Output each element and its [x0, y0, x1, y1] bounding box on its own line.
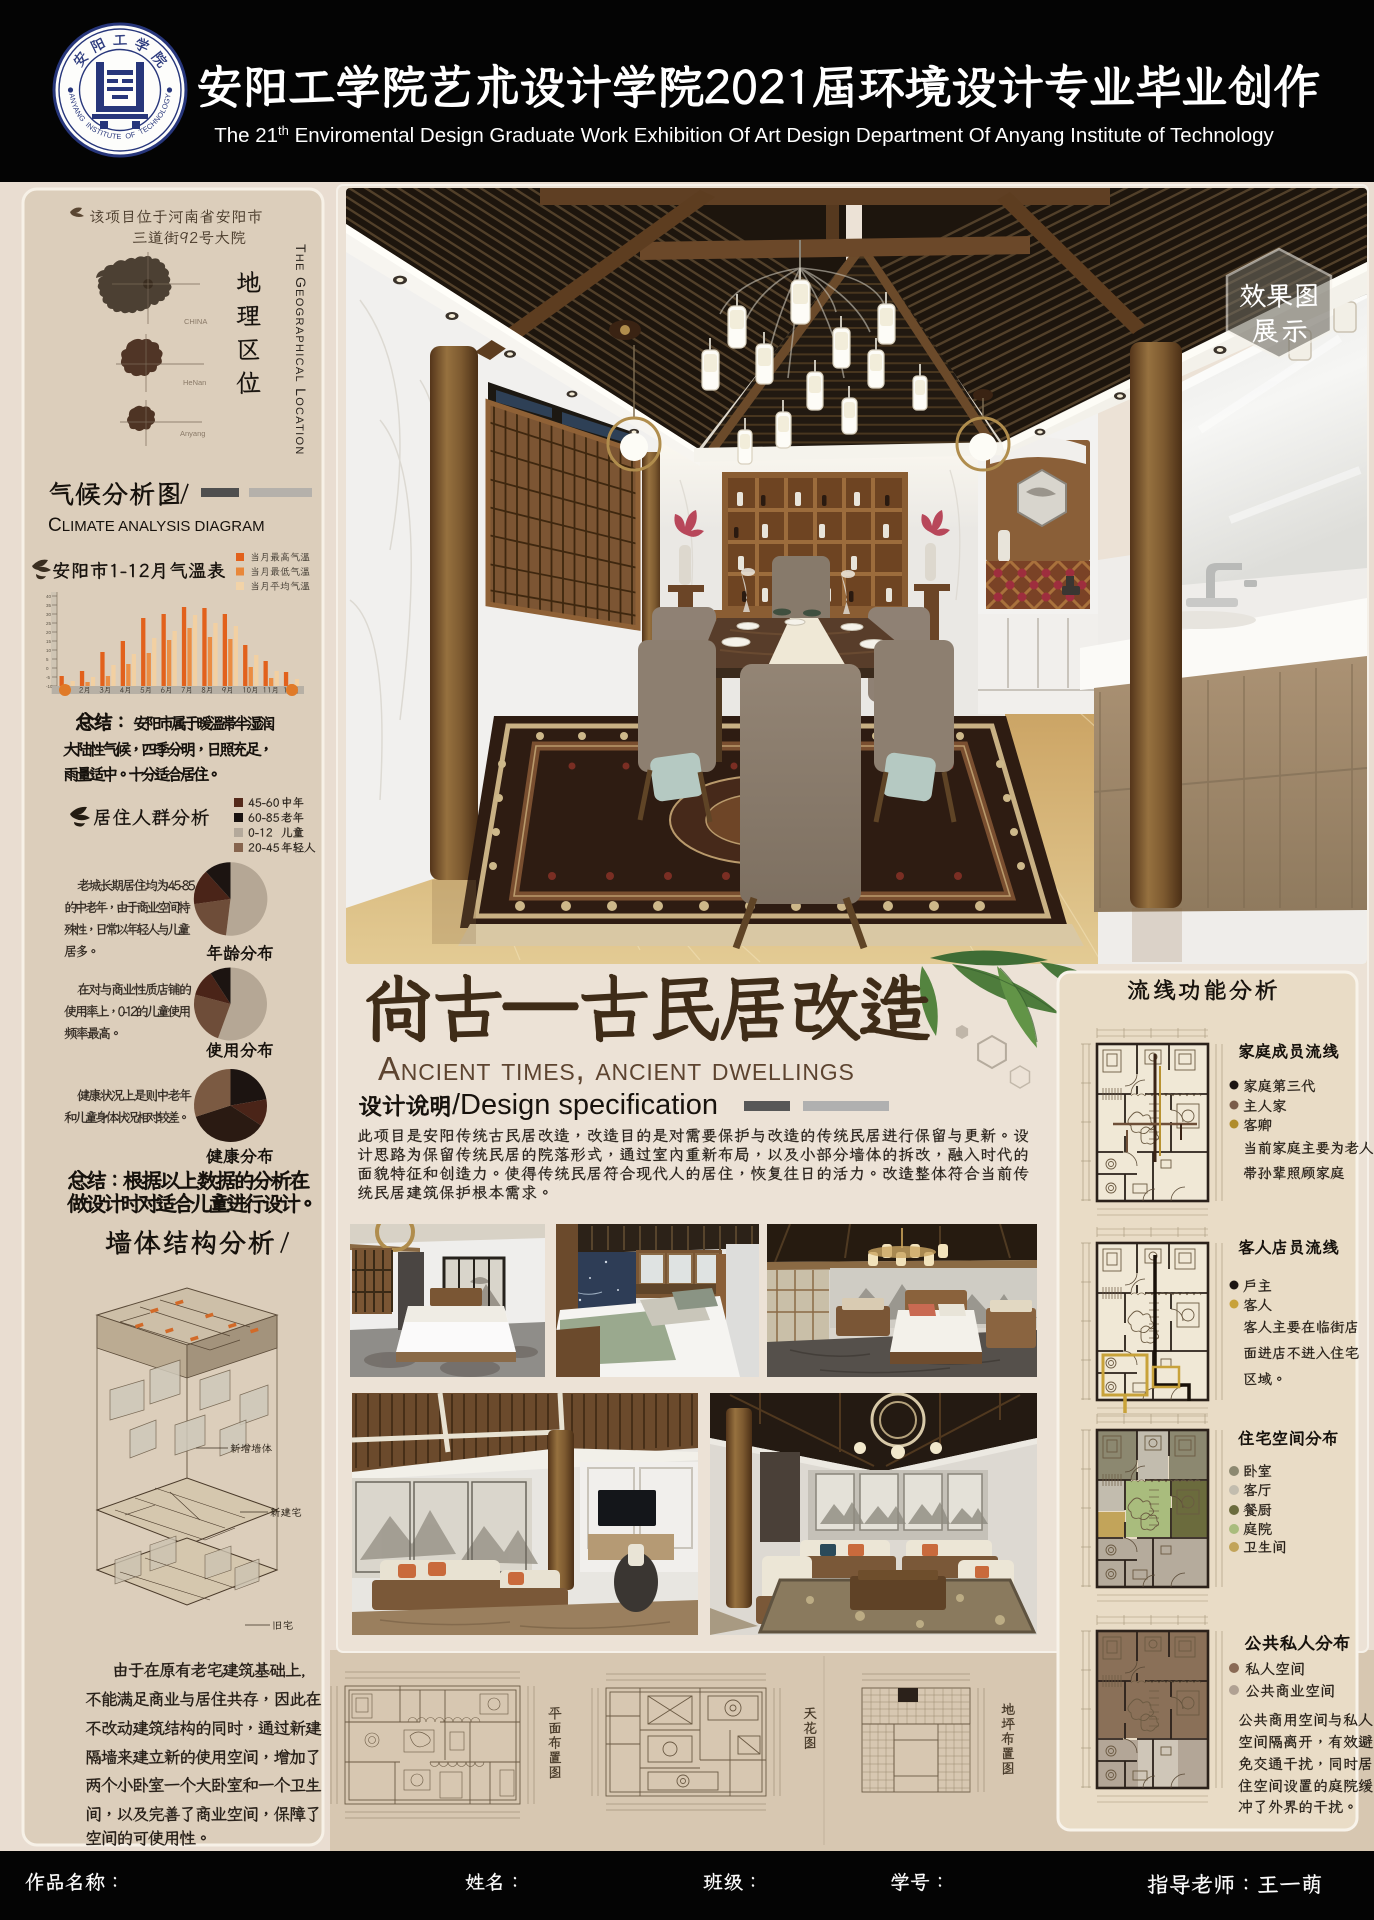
svg-text:40: 40	[46, 594, 52, 599]
svg-text:CLIMATE ANALYSIS DIAGRAM: CLIMATE ANALYSIS DIAGRAM	[48, 515, 265, 536]
svg-text:-10: -10	[46, 684, 53, 689]
svg-text:10: 10	[46, 648, 52, 653]
svg-text:20: 20	[46, 630, 52, 635]
svg-text:CHINA: CHINA	[184, 317, 207, 326]
svg-text:-5: -5	[46, 675, 50, 680]
svg-text:15: 15	[46, 639, 52, 644]
svg-text:35: 35	[46, 603, 52, 608]
svg-text:The 21th Enviromental Design: The 21th Enviromental Design Graduate Wo…	[214, 123, 1274, 147]
svg-text:/Design specification: /Design specification	[452, 1089, 718, 1121]
svg-text:HeNan: HeNan	[183, 378, 206, 387]
svg-text:25: 25	[46, 621, 52, 626]
svg-text:30: 30	[46, 612, 52, 617]
svg-text:Ancient times, ancient dwellin: Ancient times, ancient dwellings	[378, 1050, 855, 1087]
svg-text:Anyang: Anyang	[180, 429, 205, 438]
